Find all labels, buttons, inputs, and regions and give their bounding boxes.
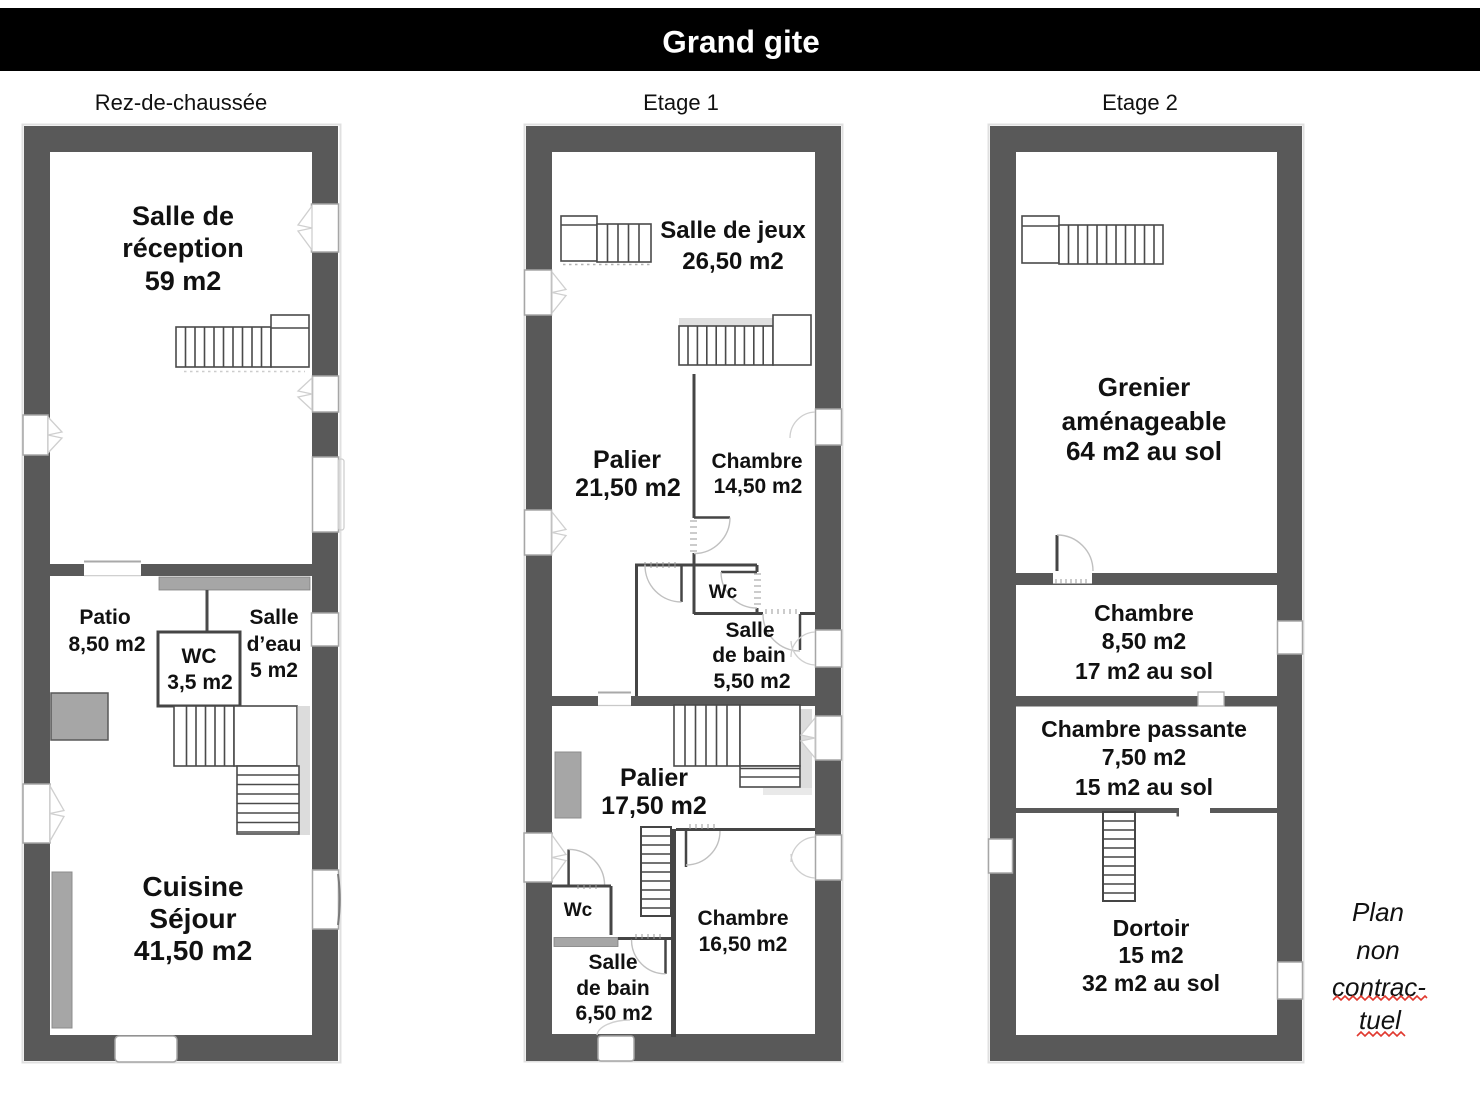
svg-text:17 m2 au sol: 17 m2 au sol — [1075, 658, 1213, 684]
svg-text:15 m2: 15 m2 — [1118, 942, 1183, 968]
svg-text:de bain: de bain — [576, 977, 650, 1000]
svg-text:Palier: Palier — [620, 764, 688, 792]
svg-text:Plan: Plan — [1352, 897, 1404, 927]
svg-text:Chambre: Chambre — [697, 907, 788, 930]
svg-text:59 m2: 59 m2 — [145, 266, 222, 296]
svg-text:26,50 m2: 26,50 m2 — [682, 248, 783, 275]
svg-text:Grenier: Grenier — [1098, 372, 1191, 402]
svg-text:Patio: Patio — [79, 606, 130, 629]
svg-text:41,50 m2: 41,50 m2 — [134, 935, 252, 966]
svg-text:7,50 m2: 7,50 m2 — [1102, 744, 1186, 770]
svg-text:Chambre: Chambre — [1094, 600, 1194, 626]
svg-text:aménageable: aménageable — [1062, 406, 1227, 436]
svg-text:de bain: de bain — [712, 644, 786, 667]
svg-text:Salle: Salle — [588, 951, 637, 974]
svg-text:5 m2: 5 m2 — [250, 659, 298, 682]
svg-text:réception: réception — [122, 233, 244, 263]
svg-text:21,50 m2: 21,50 m2 — [575, 474, 681, 502]
svg-text:Etage 1: Etage 1 — [643, 90, 719, 115]
svg-text:Wc: Wc — [709, 582, 738, 603]
svg-text:Etage 2: Etage 2 — [1102, 90, 1178, 115]
svg-text:WC: WC — [182, 645, 217, 668]
svg-text:5,50 m2: 5,50 m2 — [713, 670, 790, 693]
svg-text:8,50 m2: 8,50 m2 — [1102, 628, 1186, 654]
svg-text:15 m2 au sol: 15 m2 au sol — [1075, 774, 1213, 800]
svg-text:Séjour: Séjour — [149, 903, 236, 934]
svg-text:Palier: Palier — [593, 446, 661, 474]
svg-text:17,50 m2: 17,50 m2 — [601, 792, 707, 820]
svg-text:16,50 m2: 16,50 m2 — [699, 933, 788, 956]
svg-text:tuel: tuel — [1359, 1005, 1402, 1035]
svg-text:Wc: Wc — [564, 900, 593, 921]
svg-text:14,50 m2: 14,50 m2 — [714, 475, 803, 498]
svg-text:8,50 m2: 8,50 m2 — [68, 633, 145, 656]
svg-text:Salle de jeux: Salle de jeux — [660, 217, 806, 244]
svg-text:Salle: Salle — [725, 619, 774, 642]
svg-text:non: non — [1356, 935, 1399, 965]
svg-text:Rez-de-chaussée: Rez-de-chaussée — [95, 90, 267, 115]
svg-text:Grand gite: Grand gite — [662, 24, 820, 60]
svg-text:Salle de: Salle de — [132, 201, 234, 231]
svg-text:Dortoir: Dortoir — [1113, 915, 1190, 941]
svg-text:32 m2 au sol: 32 m2 au sol — [1082, 970, 1220, 996]
svg-text:64 m2 au sol: 64 m2 au sol — [1066, 436, 1222, 466]
svg-text:Cuisine: Cuisine — [142, 871, 243, 902]
svg-text:3,5 m2: 3,5 m2 — [167, 671, 232, 694]
svg-text:Salle: Salle — [249, 606, 298, 629]
svg-text:Chambre: Chambre — [711, 450, 802, 473]
svg-text:d’eau: d’eau — [247, 633, 302, 656]
svg-text:Chambre passante: Chambre passante — [1041, 716, 1247, 742]
